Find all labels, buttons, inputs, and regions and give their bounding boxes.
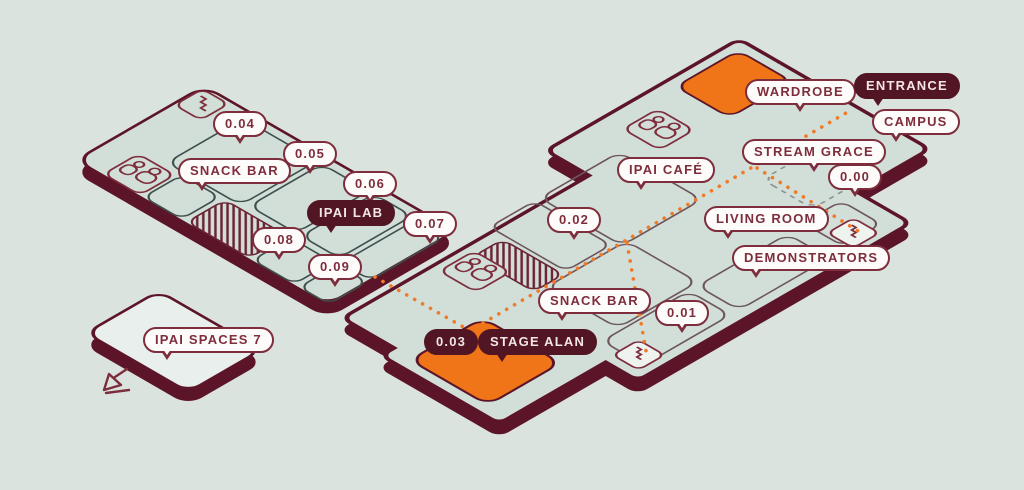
bubble-room-000: 0.00 (828, 164, 882, 190)
bubble-room-005: 0.05 (283, 141, 337, 167)
bubble-room-003: 0.03 (424, 329, 478, 355)
bubble-room-004: 0.04 (213, 111, 267, 137)
bubble-ipai-lab: IPAI LAB (307, 200, 395, 226)
bubble-room-007: 0.07 (403, 211, 457, 237)
bubble-stream-grace: STREAM GRACE (742, 139, 886, 165)
bubble-ipai-spaces-7: IPAI SPACES 7 (143, 327, 274, 353)
bubble-ipai-cafe: IPAI CAFÉ (617, 157, 715, 183)
bubble-snack-bar-right: SNACK BAR (538, 288, 651, 314)
floor-map-page: { "colors": { "background": "#dbe3df", "… (0, 0, 1024, 490)
bubble-entrance: ENTRANCE (854, 73, 960, 99)
bubble-room-009: 0.09 (308, 254, 362, 280)
bubble-room-006: 0.06 (343, 171, 397, 197)
bubble-snack-bar-left: SNACK BAR (178, 158, 291, 184)
bubble-room-002: 0.02 (547, 207, 601, 233)
bubble-stage-alan: STAGE ALAN (478, 329, 597, 355)
bubble-room-001: 0.01 (655, 300, 709, 326)
bubble-demonstrators: DEMONSTRATORS (732, 245, 890, 271)
arrow-down-left-icon (104, 369, 129, 393)
bubble-wardrobe: WARDROBE (745, 79, 856, 105)
bubble-living-room: LIVING ROOM (704, 206, 829, 232)
bubble-campus: CAMPUS (872, 109, 960, 135)
bubble-room-008: 0.08 (252, 227, 306, 253)
